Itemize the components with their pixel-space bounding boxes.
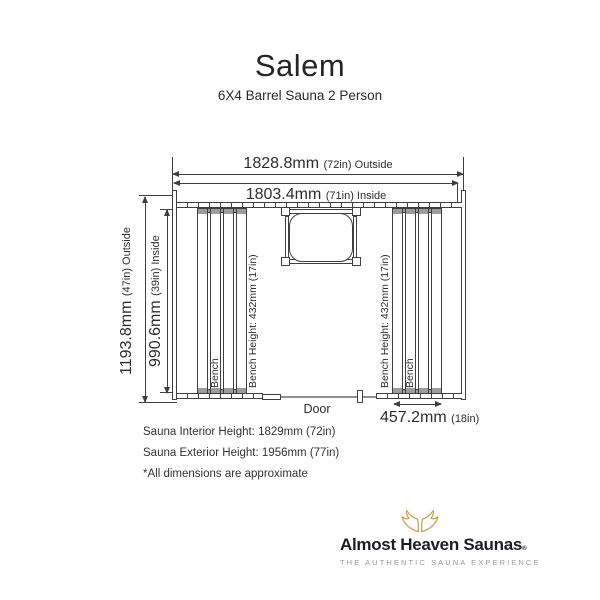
bench-slat <box>223 208 234 394</box>
heater-post <box>352 257 361 266</box>
dimension-inside-depth-label: 990.6mm (39in) Inside <box>147 210 165 393</box>
left-bench-height-label: Bench Height: 432mm (17in) <box>247 254 261 388</box>
door-label: Door <box>295 402 339 416</box>
note-interior-height: Sauna Interior Height: 1829mm (72in) <box>143 426 339 438</box>
left-wall <box>172 190 177 400</box>
page-subtitle: 6X4 Barrel Sauna 2 Person <box>0 88 600 103</box>
left-bench-label: Bench <box>209 346 222 388</box>
right-wall <box>461 190 466 400</box>
dimension-arrow-outside-width <box>173 174 463 175</box>
dimension-bench-depth-label: 457.2mm (18in) <box>380 409 456 427</box>
heater-frame-side <box>353 216 357 259</box>
heater <box>281 207 361 267</box>
notes: Sauna Interior Height: 1829mm (72in) Sau… <box>143 426 339 489</box>
wings-icon <box>396 509 444 534</box>
bench-slat <box>236 208 247 394</box>
door-jamb <box>262 394 281 400</box>
right-bench-height-label: Bench Height: 432mm (17in) <box>379 254 393 388</box>
heater-post <box>281 257 290 266</box>
page-title: Salem <box>0 48 600 84</box>
brand-logo: Almost Heaven Saunas® THE AUTHENTIC SAUN… <box>340 509 500 567</box>
note-disclaimer: *All dimensions are approximate <box>143 468 339 480</box>
registered-mark: ® <box>522 545 527 552</box>
dimension-arrow-inside-depth <box>167 210 168 393</box>
dimension-arrow-outside-depth <box>145 197 146 402</box>
brand-name: Almost Heaven Saunas® <box>340 535 500 555</box>
heater-body <box>289 213 353 262</box>
bench-slat <box>392 208 403 394</box>
heater-post <box>281 207 290 216</box>
extension-line <box>172 157 173 191</box>
dimension-outside-depth-label: 1193.8mm (47in) Outside <box>118 200 136 402</box>
note-exterior-height: Sauna Exterior Height: 1956mm (77in) <box>143 447 339 459</box>
brand-tagline: THE AUTHENTIC SAUNA EXPERIENCE <box>340 558 500 567</box>
dimension-arrow-inside-width <box>174 183 458 184</box>
bench-slat <box>418 208 429 394</box>
heater-post <box>352 207 361 216</box>
bench-slat <box>431 208 442 394</box>
dimension-arrow-bench-depth <box>394 404 442 405</box>
right-bench-label: Bench <box>404 346 417 388</box>
door-handle <box>357 390 363 403</box>
dimension-outside-width-label: 1828.8mm (72in) Outside <box>173 155 463 173</box>
extension-line <box>463 157 464 191</box>
sauna-dimension-diagram: Salem 6X4 Barrel Sauna 2 Person 1828.8mm… <box>0 0 600 600</box>
extension-line <box>457 183 458 203</box>
bench-slat <box>197 208 208 394</box>
